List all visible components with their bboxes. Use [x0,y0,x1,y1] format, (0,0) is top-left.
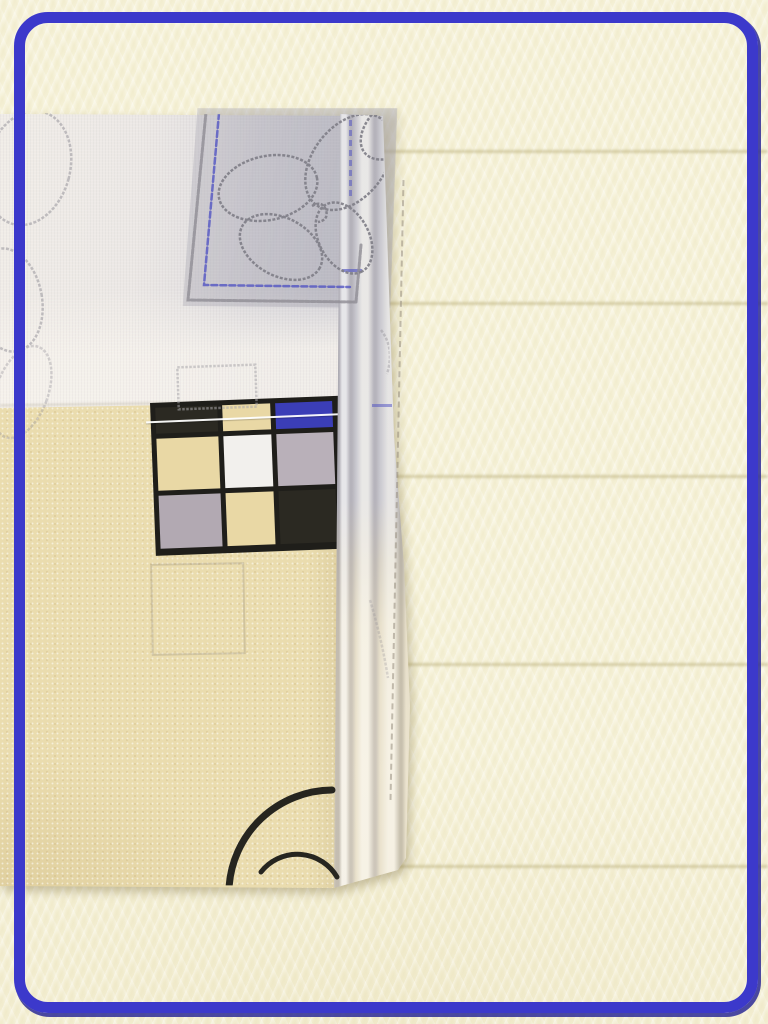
indigo-border-frame [14,12,758,1013]
product-photo [0,0,768,1024]
